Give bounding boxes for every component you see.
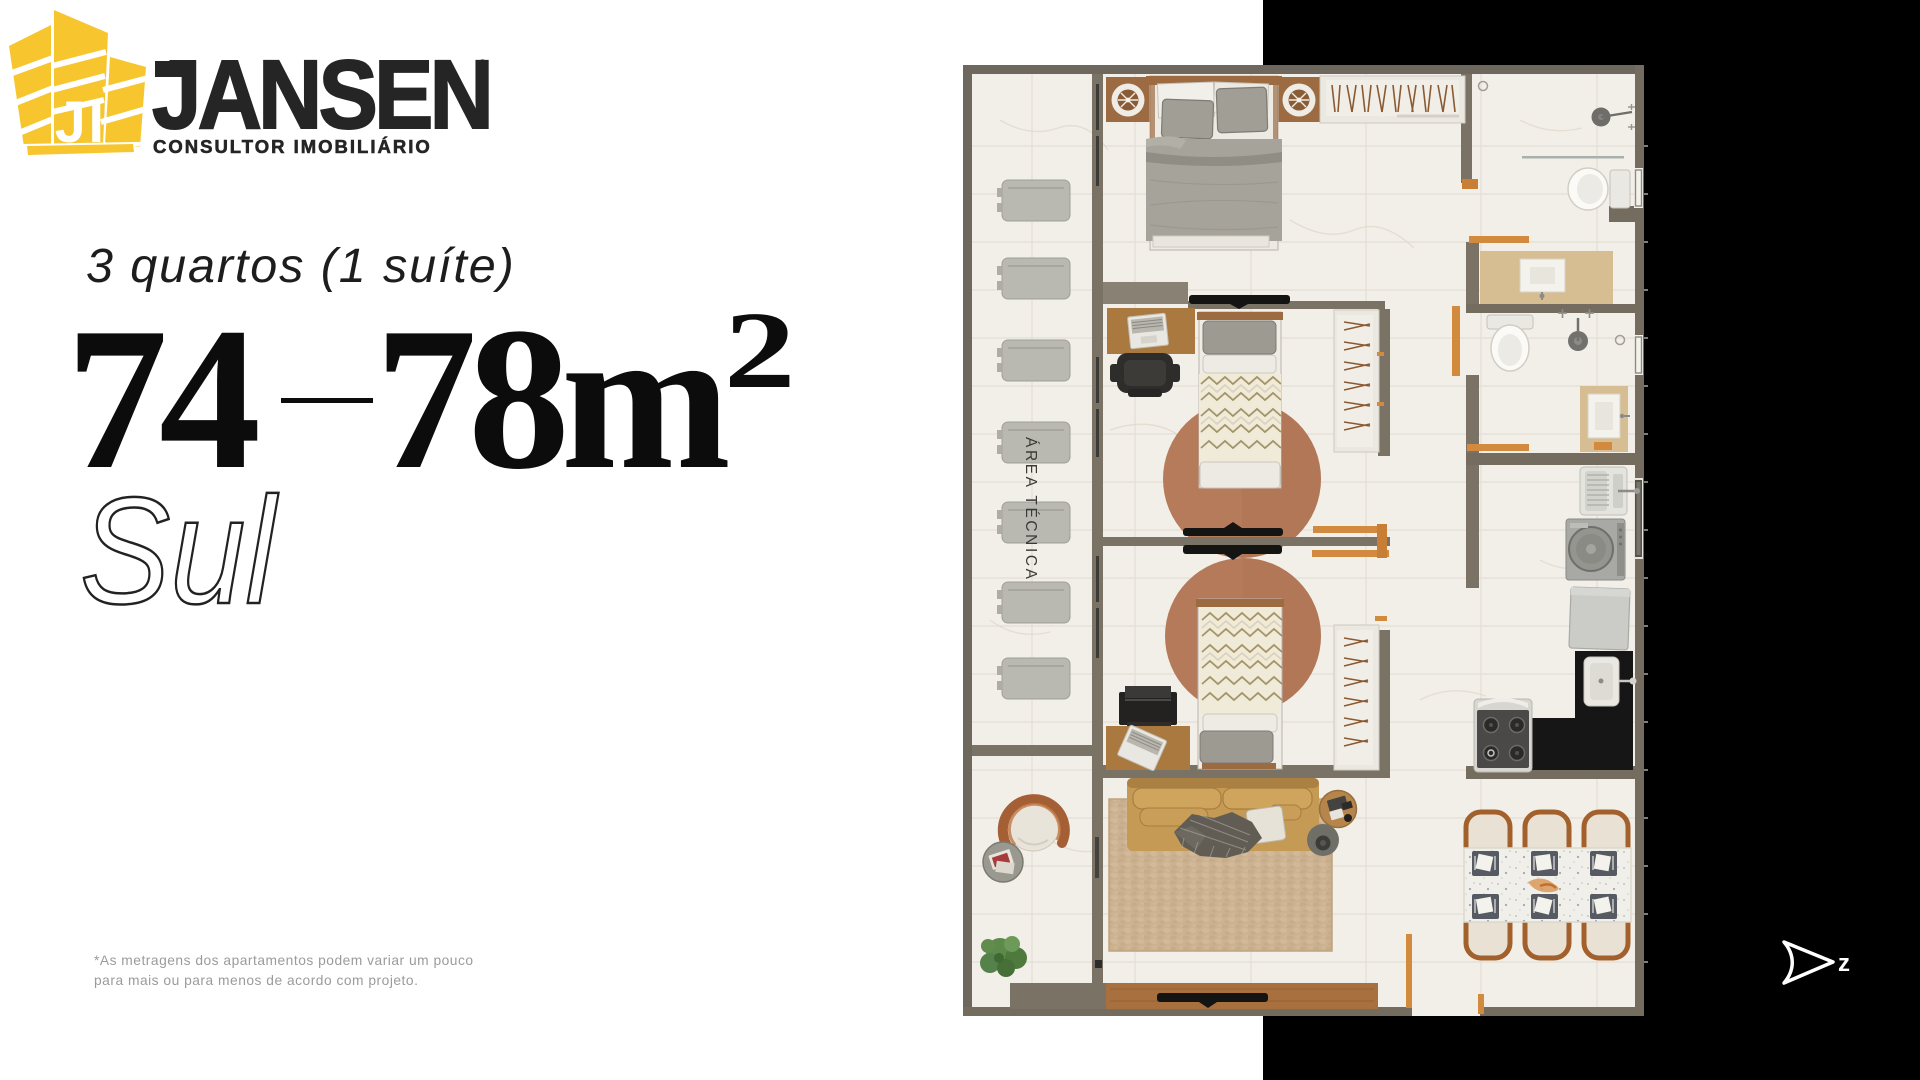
svg-text:JI: JI xyxy=(55,91,107,155)
svg-text:z: z xyxy=(1838,950,1850,977)
svg-text:ÁREA TÉCNICA: ÁREA TÉCNICA xyxy=(1022,437,1039,582)
